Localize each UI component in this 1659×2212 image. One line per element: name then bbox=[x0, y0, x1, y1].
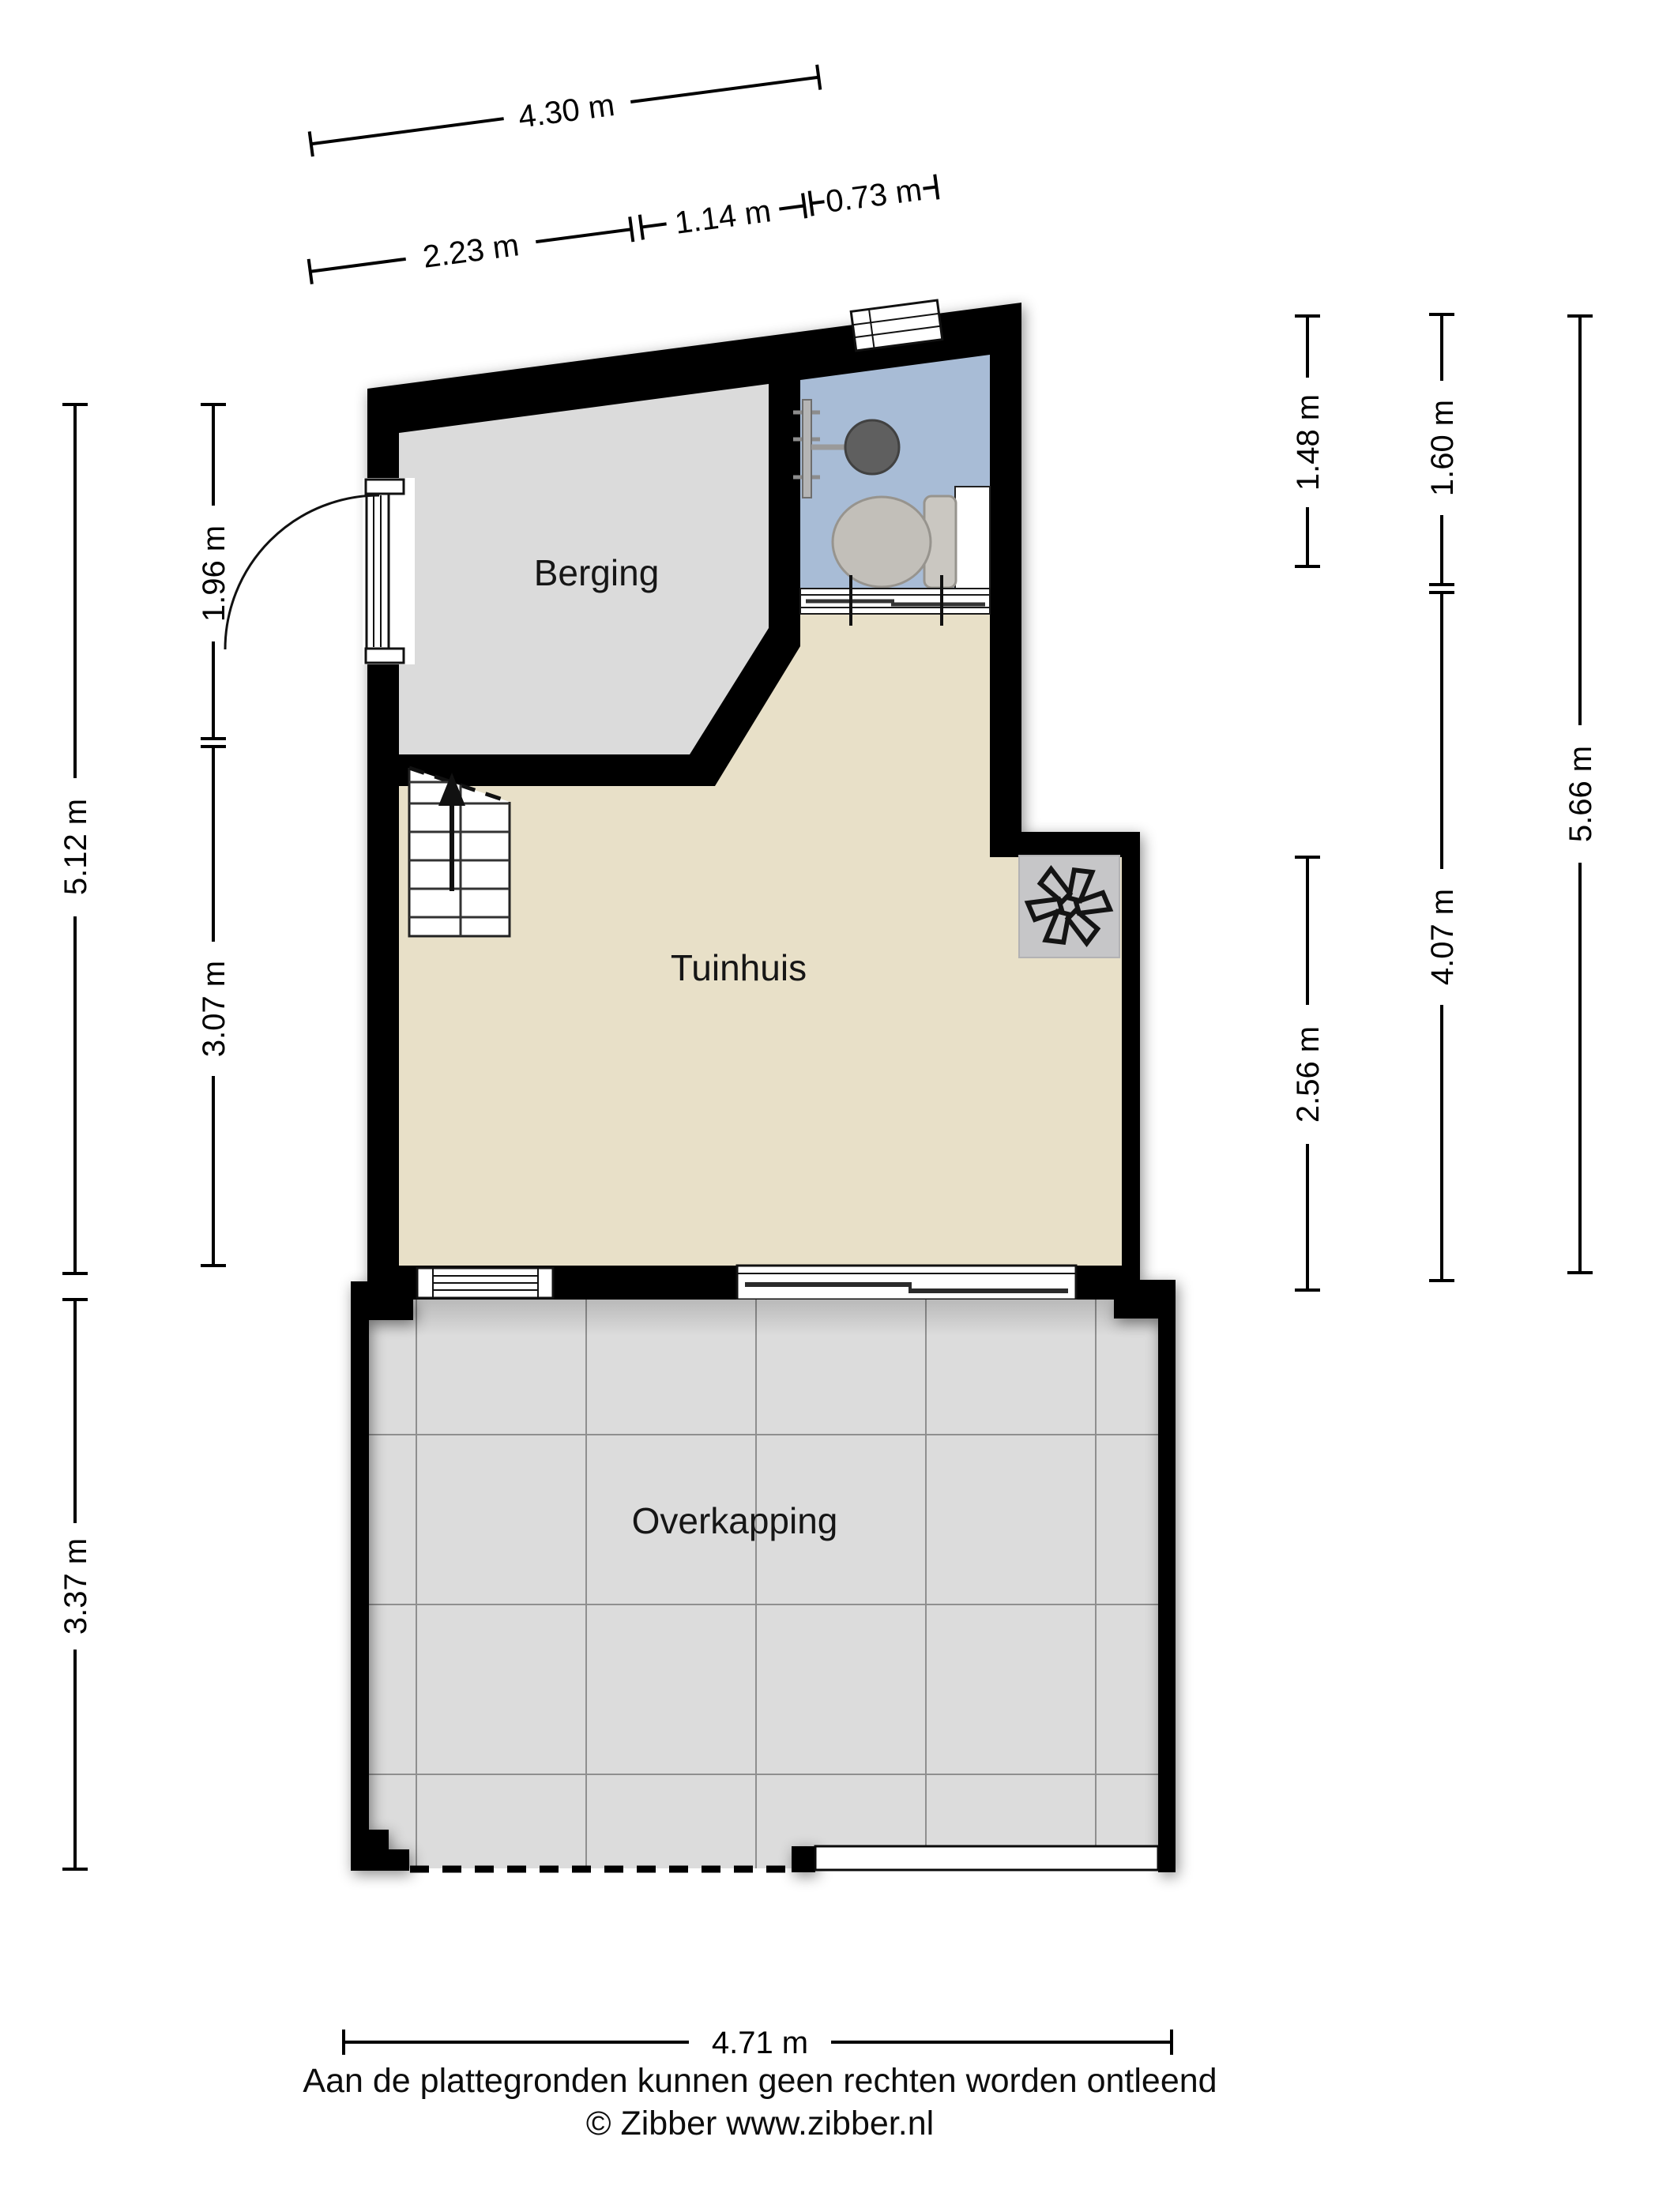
door-leaf bbox=[367, 494, 389, 649]
terrace-post-bottom bbox=[792, 1846, 815, 1872]
terrace-floor bbox=[369, 1300, 1158, 1868]
dim-top-right: 0.73 m bbox=[809, 171, 939, 222]
terrace-top-shadow bbox=[369, 1300, 1158, 1336]
dim-label-right-mid-upper: 1.60 m bbox=[1425, 400, 1460, 496]
terrace-pillar-top-right bbox=[1114, 1300, 1158, 1319]
terrace-wall-left bbox=[351, 1281, 369, 1871]
dim-left-outer-lower: 3.37 m bbox=[58, 1300, 93, 1869]
dim-label-top-right: 0.73 m bbox=[824, 172, 924, 220]
dim-label-left-inner-upper: 1.96 m bbox=[197, 525, 231, 622]
footer-disclaimer: Aan de plattegronden kunnen geen rechten… bbox=[303, 2062, 1217, 2100]
room-label-overkapping: Overkapping bbox=[632, 1500, 838, 1541]
dim-top-mid: 1.14 m bbox=[639, 190, 807, 246]
room-label-tuinhuis: Tuinhuis bbox=[671, 947, 807, 988]
dim-right-inner-upper: 1.48 m bbox=[1291, 316, 1326, 566]
room-label-berging: Berging bbox=[534, 552, 660, 593]
tuinhuis-sliding-door bbox=[737, 1266, 1076, 1300]
dim-label-right-inner-lower: 2.56 m bbox=[1291, 1026, 1326, 1123]
dim-label-right-outer: 5.66 m bbox=[1563, 746, 1598, 842]
dim-label-right-inner-upper: 1.48 m bbox=[1291, 394, 1326, 491]
dim-right-mid-lower: 4.07 m bbox=[1425, 592, 1460, 1281]
terrace-fence-bottom-right bbox=[815, 1846, 1158, 1870]
dim-bottom-total: 4.71 m bbox=[344, 2026, 1172, 2060]
dim-top-left: 2.23 m bbox=[308, 213, 634, 289]
dim-label-left-outer-lower: 3.37 m bbox=[58, 1538, 93, 1635]
dim-label-left-outer-upper: 5.12 m bbox=[58, 799, 93, 895]
floor-plan-svg: Berging Tuinhuis Overkapping 4.30 m 2.23… bbox=[0, 0, 1659, 2212]
dim-right-outer: 5.66 m bbox=[1563, 316, 1598, 1273]
stove-plate-base bbox=[1019, 856, 1119, 957]
door-jamb-top bbox=[366, 480, 404, 494]
tuinhuis-window bbox=[417, 1268, 553, 1298]
dim-label-top-mid: 1.14 m bbox=[673, 194, 773, 241]
floor-plan-page: Berging Tuinhuis Overkapping 4.30 m 2.23… bbox=[0, 0, 1659, 2212]
dim-label-top-left: 2.23 m bbox=[421, 228, 521, 275]
berging-entry-door bbox=[225, 478, 415, 664]
dim-left-outer-upper: 5.12 m bbox=[58, 404, 93, 1273]
dim-label-top-total: 4.30 m bbox=[517, 88, 617, 135]
footer-credit: © Zibber www.zibber.nl bbox=[586, 2105, 934, 2142]
door-swing-arc bbox=[225, 495, 379, 649]
stove-plate bbox=[1019, 856, 1119, 957]
terrace-wall-right bbox=[1158, 1280, 1176, 1872]
door-jamb-bottom bbox=[366, 649, 404, 663]
dim-right-mid-upper: 1.60 m bbox=[1425, 314, 1460, 585]
dim-left-inner-lower: 3.07 m bbox=[197, 747, 231, 1266]
dim-top-total: 4.30 m bbox=[309, 61, 821, 162]
dim-right-inner-lower: 2.56 m bbox=[1291, 857, 1326, 1290]
dim-label-right-mid-lower: 4.07 m bbox=[1425, 889, 1460, 985]
dim-left-inner-upper: 1.96 m bbox=[197, 404, 231, 739]
dim-label-left-inner-lower: 3.07 m bbox=[197, 961, 231, 1057]
dim-label-bottom-total: 4.71 m bbox=[712, 2026, 808, 2060]
terrace-pillar-top-left bbox=[369, 1300, 413, 1320]
